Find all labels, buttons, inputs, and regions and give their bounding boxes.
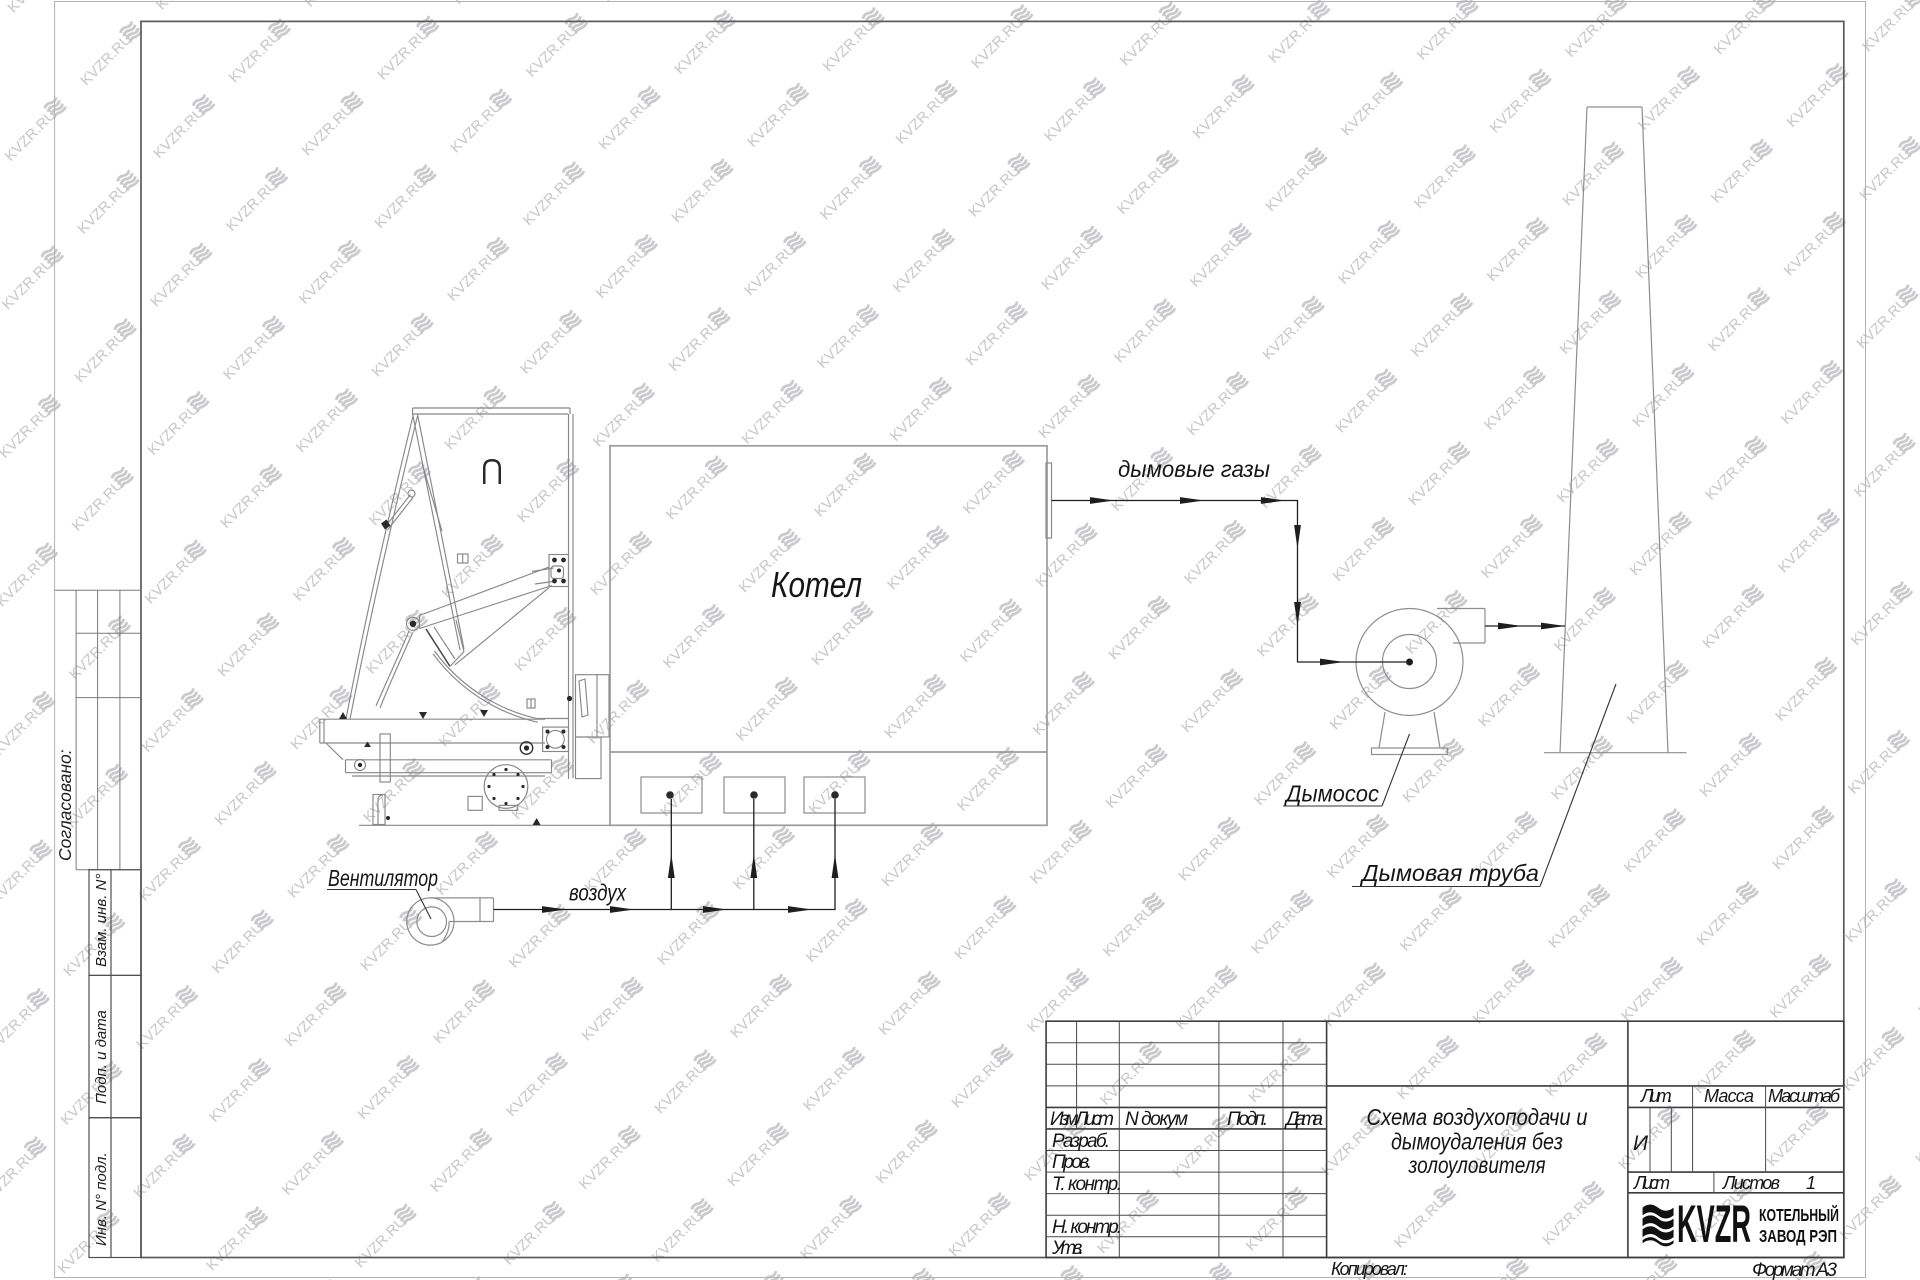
svg-text:Схема воздухоподачи и: Схема воздухоподачи и — [1367, 1104, 1588, 1130]
svg-text:Инв. N° подл.: Инв. N° подл. — [93, 1152, 110, 1246]
svg-text:золоуловителя: золоуловителя — [1408, 1152, 1546, 1178]
svg-text:Н. контр.: Н. контр. — [1052, 1217, 1122, 1238]
svg-text:Вентилятор: Вентилятор — [328, 865, 438, 891]
svg-text:Дымовая труба: Дымовая труба — [1359, 860, 1539, 886]
svg-text:И: И — [1633, 1132, 1649, 1155]
svg-text:Т. контр.: Т. контр. — [1052, 1174, 1122, 1195]
svg-text:Взам. инв. N°: Взам. инв. N° — [93, 874, 110, 967]
svg-text:ИзмЛист: ИзмЛист — [1050, 1109, 1114, 1130]
svg-text:Согласовано:: Согласовано: — [55, 749, 75, 861]
svg-text:Листов: Листов — [1722, 1173, 1780, 1193]
svg-text:дымоудаления без: дымоудаления без — [1391, 1129, 1563, 1155]
svg-text:Пров.: Пров. — [1052, 1152, 1092, 1173]
svg-text:KVZR: KVZR — [1677, 1195, 1751, 1254]
svg-text:Разраб.: Разраб. — [1052, 1131, 1110, 1152]
svg-text:Лист: Лист — [1633, 1173, 1670, 1193]
svg-text:Котел: Котел — [771, 564, 862, 605]
svg-text:Формат А3: Формат А3 — [1752, 1260, 1837, 1280]
svg-text:Подп.: Подп. — [1227, 1109, 1268, 1130]
svg-text:Дата: Дата — [1284, 1109, 1323, 1130]
svg-text:1: 1 — [1806, 1173, 1816, 1193]
svg-text:Копировал:: Копировал: — [1331, 1259, 1408, 1279]
svg-text:Масштаб: Масштаб — [1768, 1086, 1841, 1106]
svg-text:Подп. и дата: Подп. и дата — [93, 1010, 110, 1104]
svg-text:КОТЕЛЬНЫЙ: КОТЕЛЬНЫЙ — [1759, 1204, 1839, 1225]
svg-text:Лит.: Лит. — [1640, 1086, 1673, 1106]
svg-text:Дымосос: Дымосос — [1283, 781, 1379, 807]
svg-text:ЗАВОД РЭП: ЗАВОД РЭП — [1759, 1226, 1837, 1246]
svg-text:воздух: воздух — [569, 880, 627, 906]
svg-text:N докум: N докум — [1125, 1109, 1188, 1130]
svg-text:Масса: Масса — [1704, 1086, 1754, 1106]
svg-text:дымовые газы: дымовые газы — [1118, 456, 1270, 482]
svg-text:Утв.: Утв. — [1051, 1238, 1084, 1259]
